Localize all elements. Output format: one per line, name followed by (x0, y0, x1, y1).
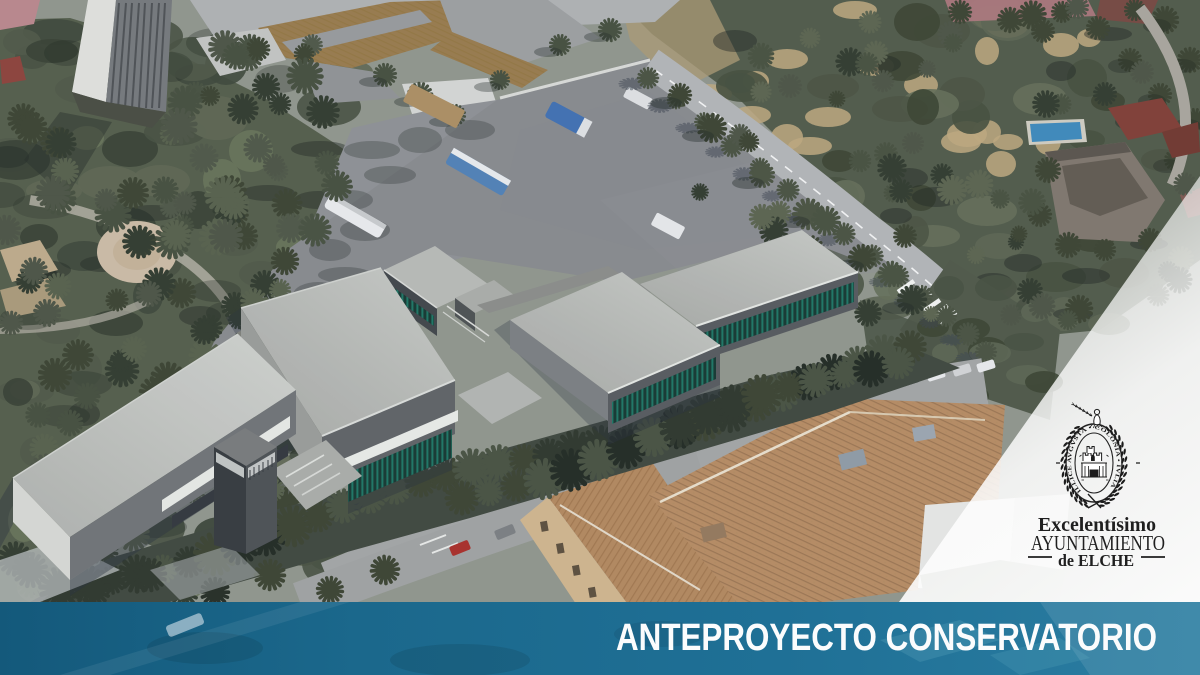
svg-text:ANTEPROYECTO CONSERVATORIO: ANTEPROYECTO CONSERVATORIO (616, 617, 1157, 659)
svg-text:de ELCHE: de ELCHE (1058, 551, 1134, 570)
